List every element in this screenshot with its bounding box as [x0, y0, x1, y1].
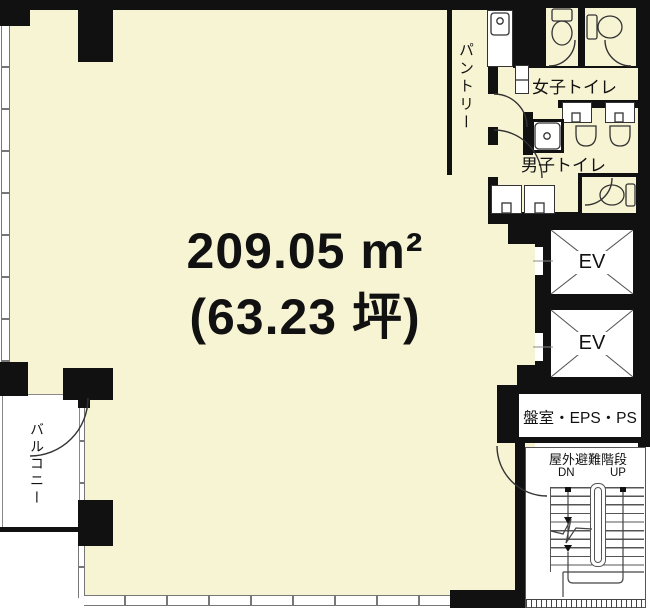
urinal-2 [610, 126, 630, 146]
area-text: 209.05 m² (63.23 坪) [120, 218, 490, 350]
mens-sink-basin [535, 123, 560, 149]
mens-stall-door-arc [585, 178, 612, 205]
womens-fixture1-tab [572, 113, 580, 122]
mens-toilet-label: 男子トイレ [521, 151, 606, 176]
balcony-label: バルコニー [27, 422, 47, 507]
womens-toilet1-tank [552, 9, 572, 21]
mens-fixture2-tab [535, 203, 544, 213]
panel-room-label: 盤室・EPS・PS [519, 406, 641, 428]
elevator-2-label: EV [574, 332, 611, 355]
womens-stall1-door-arc [549, 40, 575, 66]
outdoor-stairs-label: 屋外避難階段 [549, 449, 627, 468]
stair-dn-arrow-2 [564, 545, 572, 552]
womens-toilet1-bowl [552, 21, 572, 45]
urinal-1 [576, 126, 596, 146]
mens-fixture1-tab [502, 203, 511, 213]
pantry-sink-drain [497, 18, 503, 24]
stairs-dn-label: DN [558, 467, 575, 479]
elevator-1-label: EV [574, 251, 611, 274]
womens-toilet2-tank [587, 15, 597, 39]
womens-toilet-label: 女子トイレ [532, 73, 617, 98]
womens-entry-door-arc [494, 94, 527, 127]
womens-toilet2-bowl [598, 16, 622, 38]
womens-stall2-door-arc [605, 40, 631, 66]
stair-path-loop [568, 492, 623, 583]
fixtures [491, 9, 635, 213]
floor-plan: EV EV [0, 0, 650, 611]
stair-marks [551, 487, 644, 597]
womens-fixture2-tab [615, 113, 623, 122]
mens-sink-drain [544, 133, 550, 139]
stair-break-zigzag [551, 519, 592, 543]
stair-entry-door-arc [497, 446, 547, 496]
area-sqm: 209.05 m² [120, 218, 490, 284]
stair-dn-dot [565, 487, 571, 492]
stair-up-dot [620, 487, 626, 492]
mens-toilet-tank [626, 184, 635, 206]
mens-toilet-bowl [600, 185, 624, 205]
area-tsubo: (63.23 坪) [120, 284, 490, 350]
stairs-up-label: UP [610, 467, 626, 479]
pantry-label: パントリー [455, 42, 476, 132]
